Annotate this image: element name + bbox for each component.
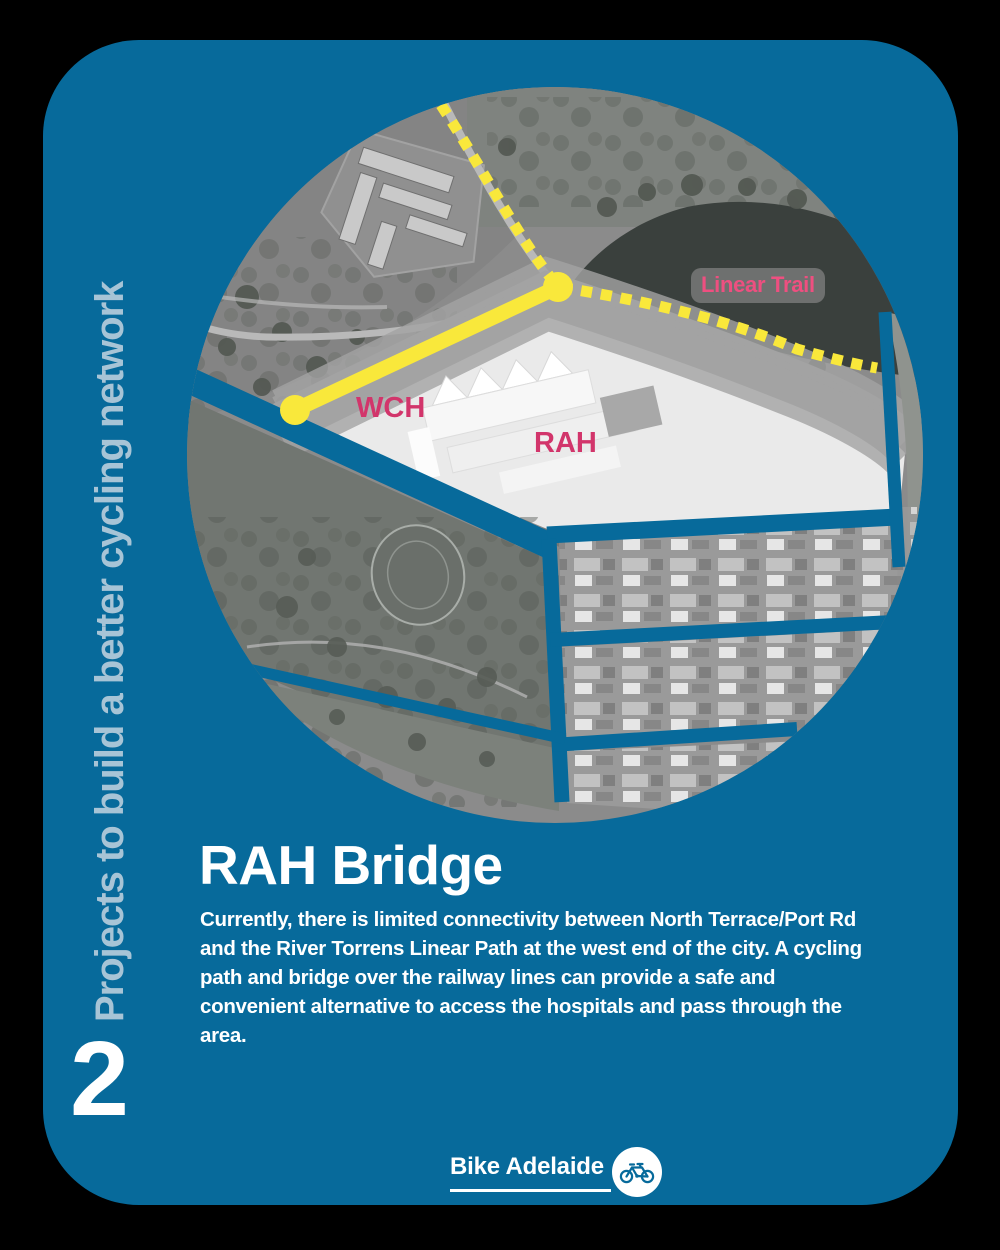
- wch-label: WCH: [356, 392, 425, 425]
- body-line: convenient alternative to access the hos…: [200, 992, 862, 1021]
- project-number: 2: [70, 1026, 129, 1132]
- poster-page: { "colors": { "teal": "#076a9b", "side_t…: [0, 0, 1000, 1250]
- rah-label: RAH: [534, 427, 597, 460]
- series-vertical-label: Projects to build a better cycling netwo…: [88, 282, 133, 1022]
- page-title: RAH Bridge: [199, 833, 503, 897]
- linear-trail-label: Linear Trail: [691, 268, 825, 303]
- body-line: and the River Torrens Linear Path at the…: [200, 934, 862, 963]
- brand-badge: [612, 1147, 662, 1197]
- brand-name: Bike Adelaide: [450, 1153, 604, 1181]
- brand-underline: [450, 1189, 611, 1192]
- project-description: Currently, there is limited connectivity…: [200, 905, 862, 1050]
- body-line: path and bridge over the railway lines c…: [200, 963, 862, 992]
- bicycle-icon: [619, 1159, 655, 1185]
- body-line: area.: [200, 1021, 862, 1050]
- body-line: Currently, there is limited connectivity…: [200, 905, 862, 934]
